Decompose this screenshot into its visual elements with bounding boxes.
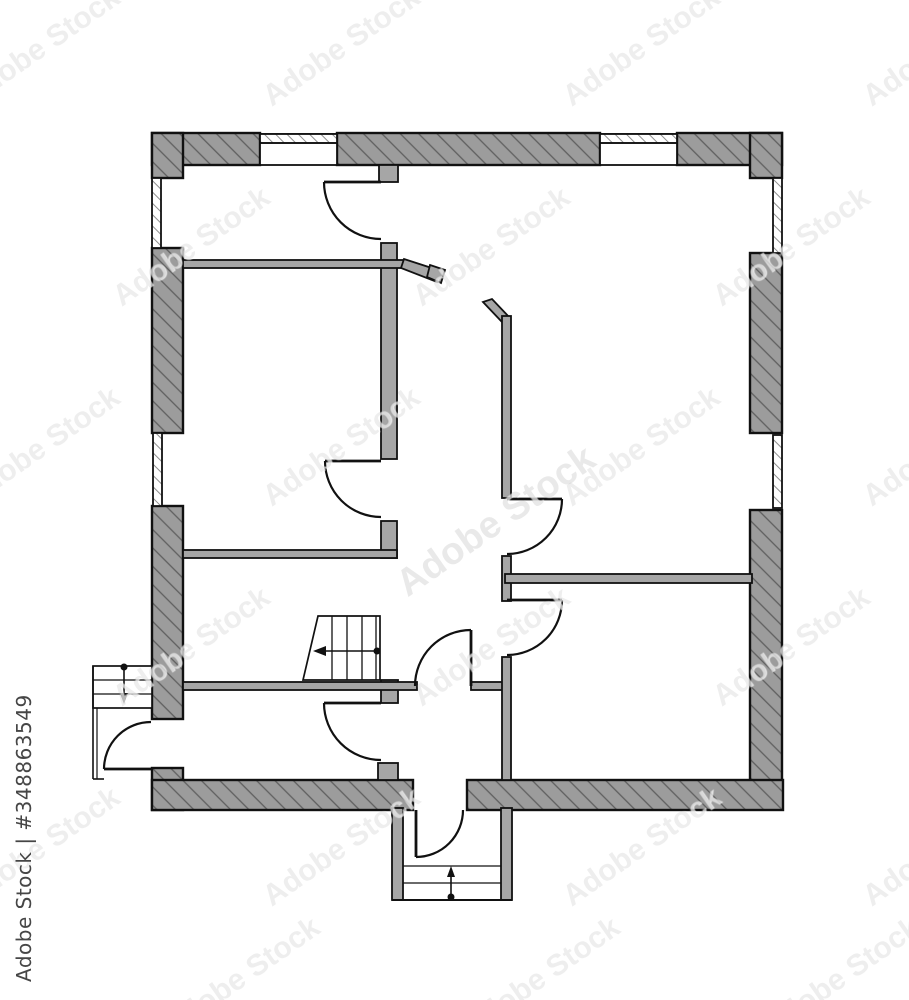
window-right-1: [773, 178, 782, 253]
right-wall-upper: [750, 253, 782, 433]
window-left-1: [152, 178, 161, 248]
left-wall-upper: [152, 248, 183, 433]
door-side-exit: [104, 722, 151, 769]
staircase-interior: [303, 616, 381, 680]
wall-partition-lower: [502, 657, 511, 780]
door-right-room-upper: [507, 499, 562, 554]
door-top-left-room: [324, 182, 381, 239]
windows: [152, 134, 782, 508]
staircase-side-left: [93, 664, 152, 780]
porch-wall-right: [501, 808, 512, 900]
window-top-1: [260, 134, 337, 165]
corner-top-left: [152, 133, 183, 178]
bottom-wall-left: [152, 780, 413, 810]
corner-top-right: [750, 133, 782, 178]
wall-stub-bottom: [378, 763, 398, 780]
wall-partition-upper: [502, 316, 511, 498]
top-wall-middle: [337, 133, 600, 165]
floor-plan-drawing: [0, 0, 909, 1000]
bottom-wall-right: [467, 780, 783, 810]
wall-vertical-left-upper: [381, 243, 397, 459]
wall-stub-top: [379, 165, 398, 182]
window-left-2: [153, 433, 162, 506]
wall-h-stairhall-right: [471, 682, 503, 690]
stock-image-canvas: Adobe Stock Adobe Stock Adobe Stock Adob…: [0, 0, 909, 1000]
wall-h-stairhall: [183, 682, 417, 690]
entrance-porch: [392, 808, 512, 901]
window-top-2: [600, 134, 677, 165]
wall-h-top-left-room: [183, 260, 406, 268]
right-wall-lower: [750, 510, 782, 782]
window-right-2: [773, 435, 782, 508]
door-right-room-lower: [507, 600, 562, 655]
door-bottom-left-room: [324, 703, 381, 760]
wall-h-mid-left: [183, 550, 397, 558]
porch-wall-left: [392, 808, 403, 900]
wall-h-right-rooms: [505, 574, 752, 583]
door-main-entrance: [416, 810, 463, 857]
left-wall-lower: [152, 506, 183, 719]
wall-diagonal-top-cap: [427, 265, 445, 283]
door-middle-left-room: [325, 461, 381, 517]
door-stair-hall: [415, 630, 471, 686]
interior-walls: [183, 165, 752, 780]
exterior-walls: [152, 133, 783, 810]
